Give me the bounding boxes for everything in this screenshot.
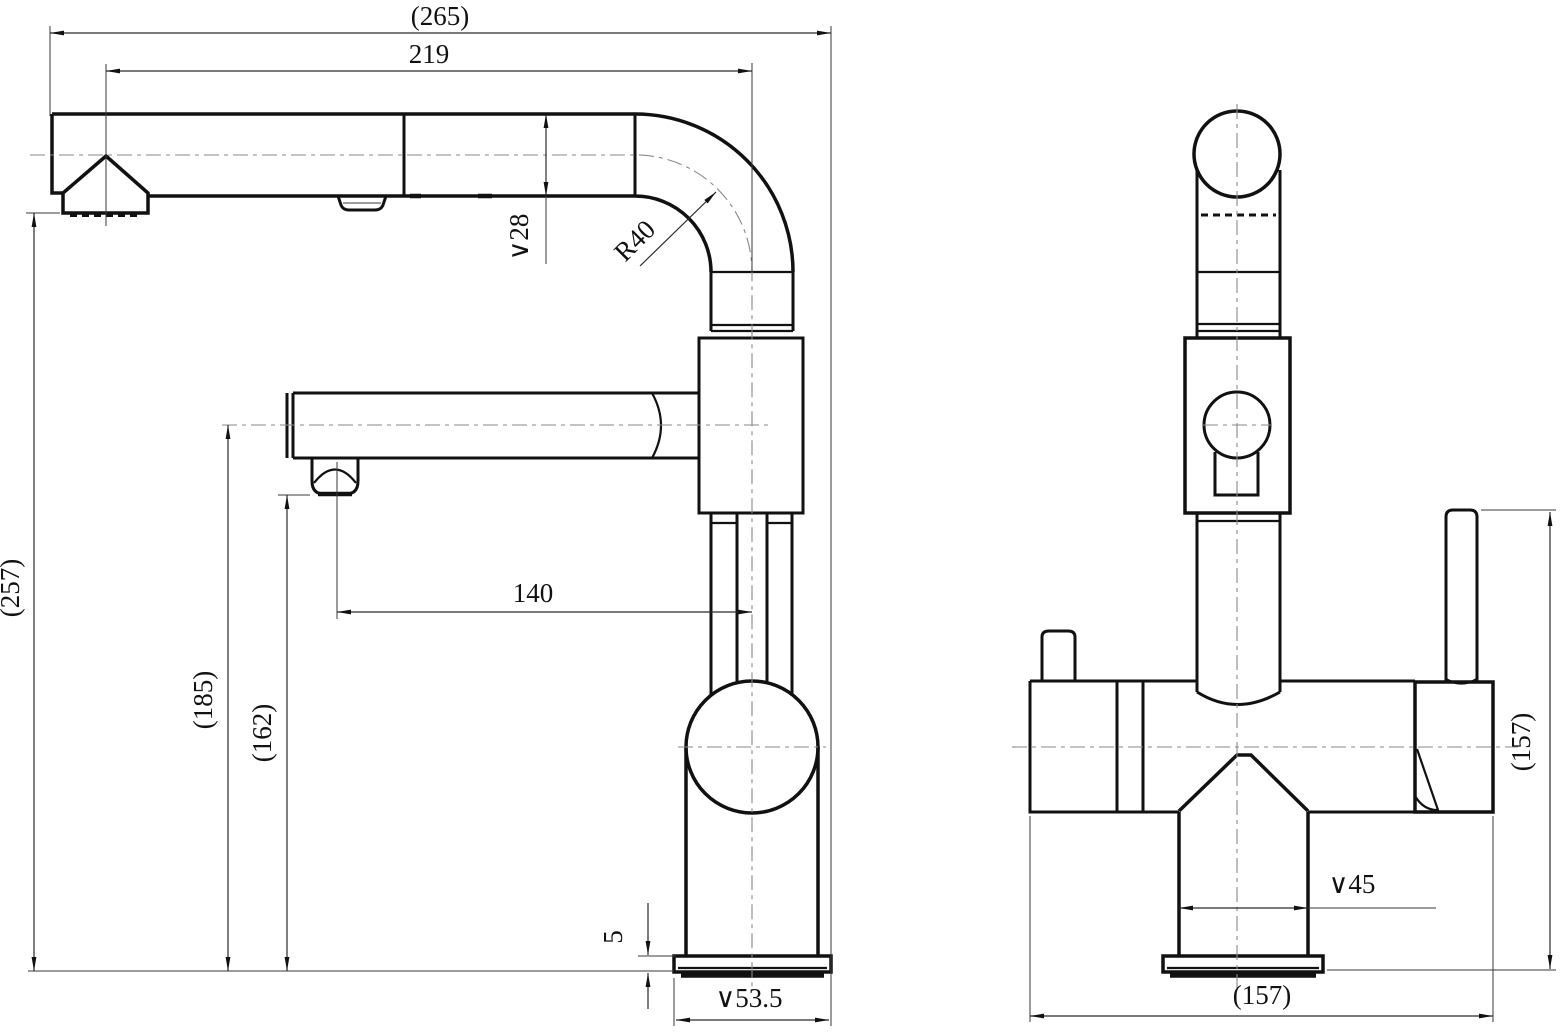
side-view — [52, 114, 831, 976]
spout-top-and-outer-bend — [52, 114, 793, 272]
dim-bend-radius: R40 — [608, 214, 661, 267]
dim-spray-arm-reach: 140 — [513, 578, 554, 608]
dim-front-height: (157) — [1506, 713, 1536, 771]
spray-nozzle-arch — [314, 470, 356, 484]
dim-spout-reach: 219 — [409, 39, 450, 69]
dim-shank-diameter: ∨45 — [1329, 869, 1376, 899]
dim-spray-outlet-height: (162) — [247, 704, 277, 762]
riser-tube — [1197, 513, 1280, 692]
handle-lever — [1446, 510, 1477, 682]
spout-left-end — [52, 114, 63, 193]
dim-base-diameter: ∨53.5 — [715, 983, 782, 1013]
spout-centerline — [30, 155, 752, 988]
riser-tube-rounded-end — [1197, 692, 1280, 705]
spout-column-rings — [1197, 272, 1280, 331]
shank-tube — [1179, 812, 1308, 956]
front-view — [1030, 111, 1493, 976]
technical-drawing-page: (265) 219 ∨28 R40 (257) (185) (162) 140 … — [0, 0, 1561, 1033]
shank-cone — [1179, 755, 1308, 811]
diverter-knob — [1042, 631, 1075, 682]
dim-overall-height: (257) — [0, 559, 25, 617]
dim-spout-diameter: ∨28 — [504, 214, 534, 261]
dim-base-plate-thickness: 5 — [598, 930, 628, 944]
centerlines — [30, 64, 1518, 988]
handle-pivot-wedge — [1415, 749, 1439, 810]
spout-column — [1197, 170, 1280, 338]
faucet-dimension-drawing: (265) 219 ∨28 R40 (257) (185) (162) 140 … — [0, 0, 1561, 1033]
dim-overall-length: (265) — [411, 1, 469, 31]
base-plate-front — [1163, 956, 1323, 972]
dimension-labels: (265) 219 ∨28 R40 (257) (185) (162) 140 … — [0, 1, 1536, 1013]
dim-front-width: (157) — [1233, 980, 1291, 1010]
dim-spray-arm-height: (185) — [188, 671, 218, 729]
